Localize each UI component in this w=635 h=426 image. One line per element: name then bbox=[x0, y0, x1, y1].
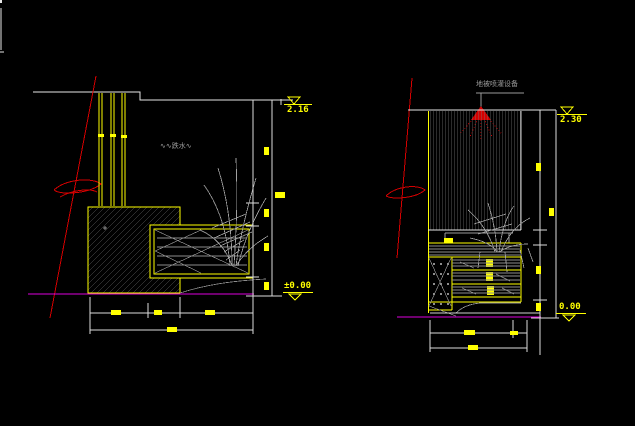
cad-viewport: ∿∿跌水∿ 地被喷灌设备 2.16 ±0.00 2.30 0.00 bbox=[0, 0, 635, 426]
left-wall-top-outline bbox=[33, 92, 293, 100]
viewport-edge-artifact bbox=[0, 0, 4, 52]
left-top-elevation-value: 2.16 bbox=[287, 106, 309, 115]
right-section-drawing bbox=[386, 78, 587, 355]
sprinkler-leader-line bbox=[476, 93, 524, 107]
right-wall-hatch bbox=[428, 111, 521, 313]
right-section-cut-line bbox=[386, 78, 425, 258]
left-elevation-drawing bbox=[28, 76, 313, 334]
right-bottom-elevation-value: 0.00 bbox=[559, 303, 581, 312]
right-elevation-symbols bbox=[556, 107, 587, 321]
right-top-elevation-value: 2.30 bbox=[560, 116, 582, 125]
right-ground-curve bbox=[456, 303, 521, 313]
right-pipe-lines bbox=[445, 233, 513, 243]
left-elevation-symbols bbox=[283, 97, 313, 300]
cad-linework bbox=[0, 0, 635, 426]
left-bottom-elevation-value: ±0.00 bbox=[284, 282, 311, 291]
left-wall-face-lines bbox=[98, 93, 127, 206]
right-sprinkler-label: 地被喷灌设备 bbox=[476, 81, 518, 88]
left-water-cascade-label: ∿∿跌水∿ bbox=[160, 143, 192, 150]
right-cascade-planter bbox=[428, 238, 540, 316]
